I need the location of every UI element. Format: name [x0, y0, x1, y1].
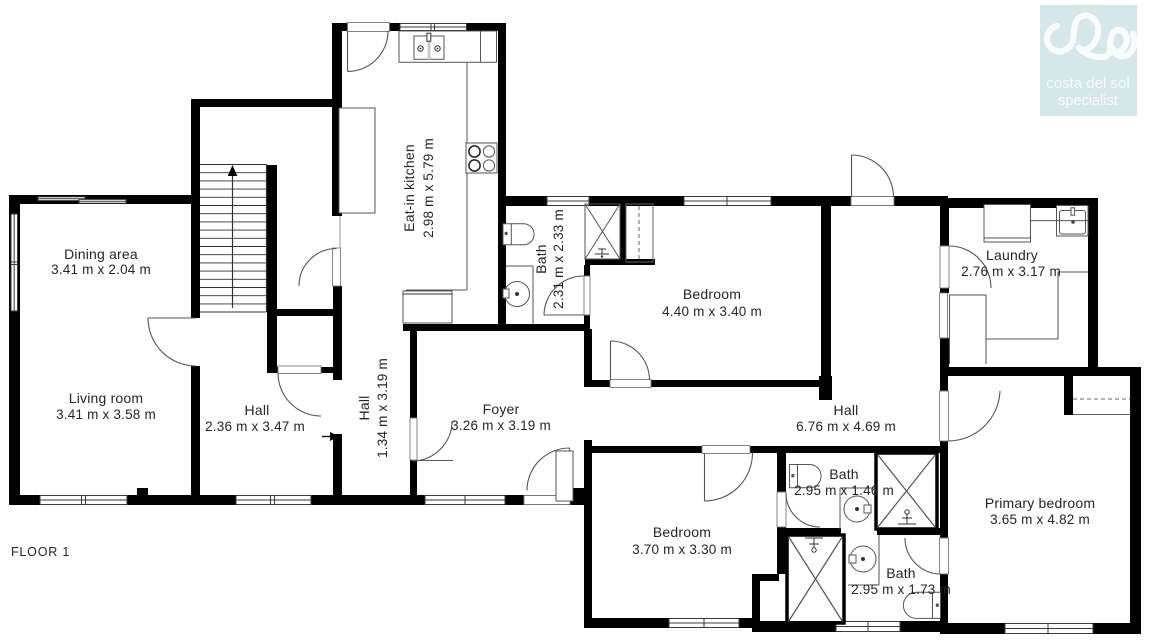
svg-text:Dining area: Dining area — [64, 246, 138, 262]
svg-text:Bath: Bath — [829, 466, 859, 482]
svg-text:3.41 m x 2.04 m: 3.41 m x 2.04 m — [51, 262, 151, 277]
svg-text:2.95 m x 1.46 m: 2.95 m x 1.46 m — [794, 483, 894, 498]
svg-text:Bath: Bath — [533, 244, 549, 274]
svg-text:Bath: Bath — [886, 565, 916, 581]
svg-text:Primary bedroom: Primary bedroom — [985, 495, 1095, 511]
svg-text:2.76 m x 3.17 m: 2.76 m x 3.17 m — [961, 264, 1061, 279]
svg-text:4.40 m x 3.40 m: 4.40 m x 3.40 m — [662, 304, 762, 319]
svg-text:1.34 m x 3.19 m: 1.34 m x 3.19 m — [375, 358, 390, 458]
svg-text:Living room: Living room — [69, 390, 144, 406]
svg-text:2.98 m x 5.79 m: 2.98 m x 5.79 m — [421, 138, 436, 238]
svg-text:Hall: Hall — [356, 396, 372, 421]
svg-text:Eat-in kitchen: Eat-in kitchen — [401, 144, 417, 232]
svg-text:Hall: Hall — [834, 402, 859, 418]
svg-text:FLOOR 1: FLOOR 1 — [11, 545, 70, 559]
svg-text:3.65 m x 4.82 m: 3.65 m x 4.82 m — [990, 512, 1090, 527]
svg-text:3.26 m x 3.19 m: 3.26 m x 3.19 m — [451, 418, 551, 433]
svg-text:specialist: specialist — [1058, 93, 1118, 109]
svg-text:Foyer: Foyer — [483, 401, 520, 417]
svg-text:Bedroom: Bedroom — [683, 286, 741, 302]
svg-text:6.76 m x 4.69 m: 6.76 m x 4.69 m — [796, 419, 896, 434]
svg-text:Hall: Hall — [245, 402, 270, 418]
svg-text:3.41 m x 3.58 m: 3.41 m x 3.58 m — [56, 407, 156, 422]
svg-text:2.36 m x 3.47 m: 2.36 m x 3.47 m — [205, 419, 305, 434]
svg-text:3.70 m x 3.30 m: 3.70 m x 3.30 m — [632, 542, 732, 557]
svg-text:2.95 m x 1.73 m: 2.95 m x 1.73 m — [851, 582, 951, 597]
svg-text:costa del sol: costa del sol — [1046, 75, 1129, 92]
svg-text:Laundry: Laundry — [986, 247, 1038, 263]
svg-text:2.31 m x 2.33 m: 2.31 m x 2.33 m — [551, 209, 566, 309]
svg-text:Bedroom: Bedroom — [653, 524, 711, 540]
